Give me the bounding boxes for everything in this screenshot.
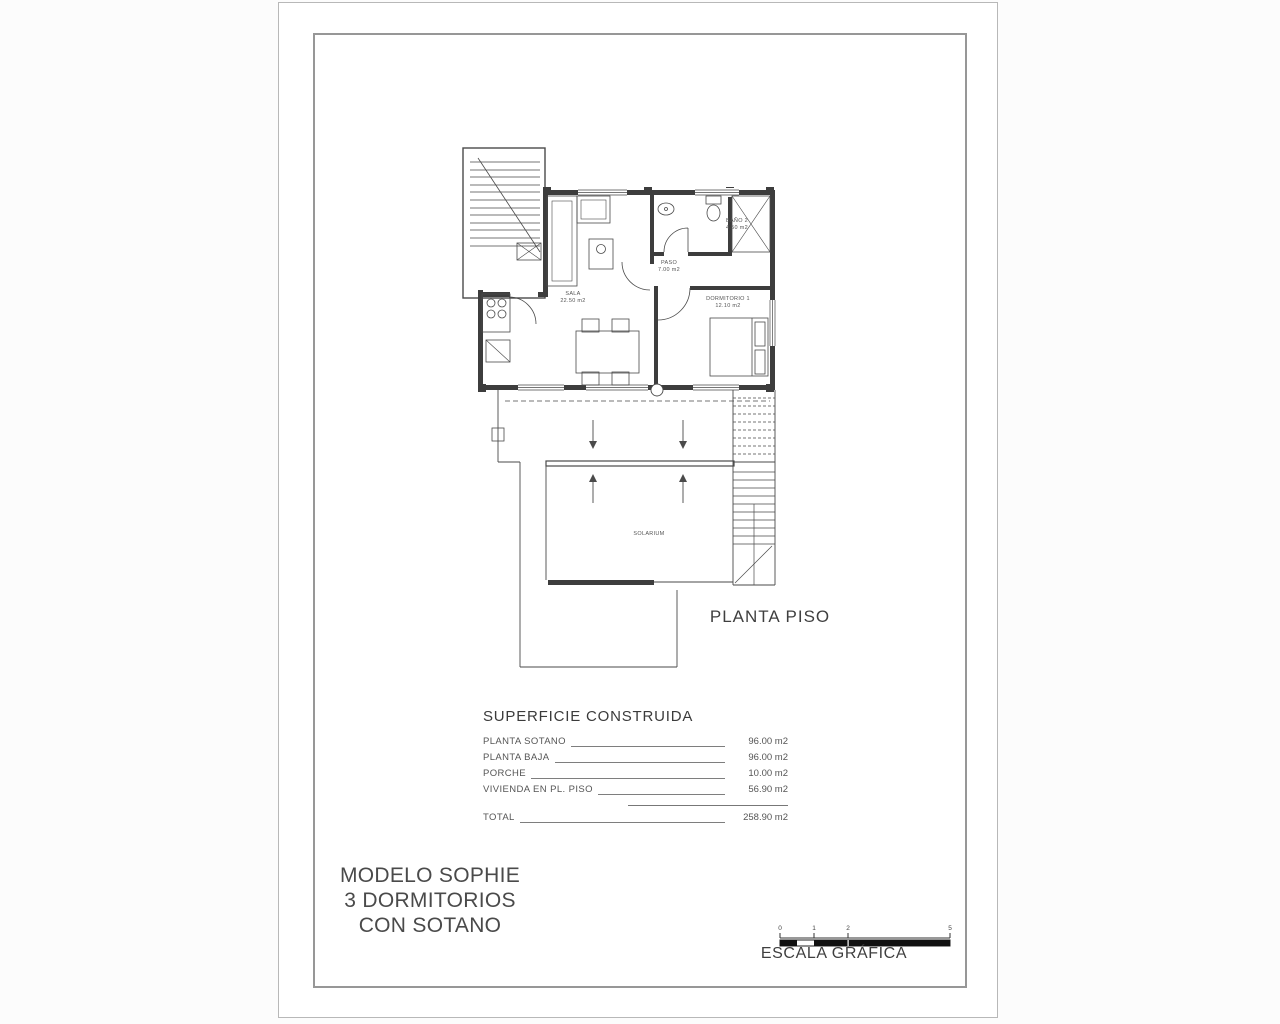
row-value: 56.90 m2: [730, 785, 788, 796]
row-value: 10.00 m2: [730, 769, 788, 780]
total-label: TOTAL: [483, 813, 515, 824]
room-label-dormitorio: DORMITORIO 1: [706, 296, 750, 302]
scale-tick-2: 2: [846, 925, 850, 932]
scale-tick-0: 0: [778, 925, 782, 932]
sofa-icon: [547, 196, 577, 286]
room-area-sala: 22.50 m2: [560, 298, 585, 304]
areas-table-title: SUPERFICIE CONSTRUIDA: [483, 708, 788, 725]
toilet-icon: [706, 196, 721, 204]
table-row: VIVIENDA EN PL. PISO 56.90 m2: [483, 785, 788, 796]
row-label: PLANTA BAJA: [483, 753, 550, 764]
model-title-block: MODELO SOPHIE 3 DORMITORIOS CON SOTANO: [327, 863, 533, 939]
model-line-1: MODELO SOPHIE: [327, 863, 533, 888]
scale-caption: ESCALA GRÁFICA: [748, 945, 920, 963]
room-label-bano: BAÑO 2: [726, 217, 748, 224]
room-area-bano: 4.50 m2: [726, 225, 748, 231]
row-label: PORCHE: [483, 769, 526, 780]
dining-table-icon: [576, 331, 639, 373]
bed-icon: [710, 318, 768, 376]
floor-plan-drawing: SALA 22.50 m2 PASO 7.00 m2 BAÑO 2 4.50 m…: [0, 0, 1280, 1024]
row-value: 96.00 m2: [730, 737, 788, 748]
coffee-table-icon: [589, 239, 613, 269]
scale-bar: 0 1 2 5: [778, 925, 952, 946]
room-label-sala: SALA: [565, 291, 580, 297]
row-label: VIVIENDA EN PL. PISO: [483, 785, 593, 796]
doors: [509, 228, 690, 324]
model-line-3: CON SOTANO: [327, 913, 533, 938]
leader-line: [571, 745, 725, 747]
leader-line: [520, 821, 725, 823]
scale-tick-1: 1: [812, 925, 816, 932]
table-row: PLANTA BAJA 96.00 m2: [483, 753, 788, 764]
leader-line: [555, 761, 725, 763]
exterior-stairs: [463, 148, 545, 298]
leader-line: [531, 777, 725, 779]
room-area-paso: 7.00 m2: [658, 267, 680, 273]
sum-divider: [628, 805, 788, 806]
row-label: PLANTA SOTANO: [483, 737, 566, 748]
row-value: 96.00 m2: [730, 753, 788, 764]
table-row: PORCHE 10.00 m2: [483, 769, 788, 780]
room-area-dormitorio: 12.10 m2: [715, 303, 740, 309]
room-label-paso: PASO: [661, 260, 677, 266]
table-row: PLANTA SOTANO 96.00 m2: [483, 737, 788, 748]
total-value: 258.90 m2: [730, 813, 788, 824]
areas-table: SUPERFICIE CONSTRUIDA PLANTA SOTANO 96.0…: [483, 708, 788, 829]
leader-line: [598, 793, 725, 795]
drawing-canvas: SALA 22.50 m2 PASO 7.00 m2 BAÑO 2 4.50 m…: [0, 0, 1280, 1024]
model-line-2: 3 DORMITORIOS: [327, 888, 533, 913]
sink-icon: [658, 203, 674, 215]
table-total-row: TOTAL 258.90 m2: [483, 813, 788, 824]
room-label-solarium: SOLARIUM: [633, 531, 664, 537]
plan-title: PLANTA PISO: [706, 607, 834, 627]
scale-tick-3: 5: [948, 925, 952, 932]
